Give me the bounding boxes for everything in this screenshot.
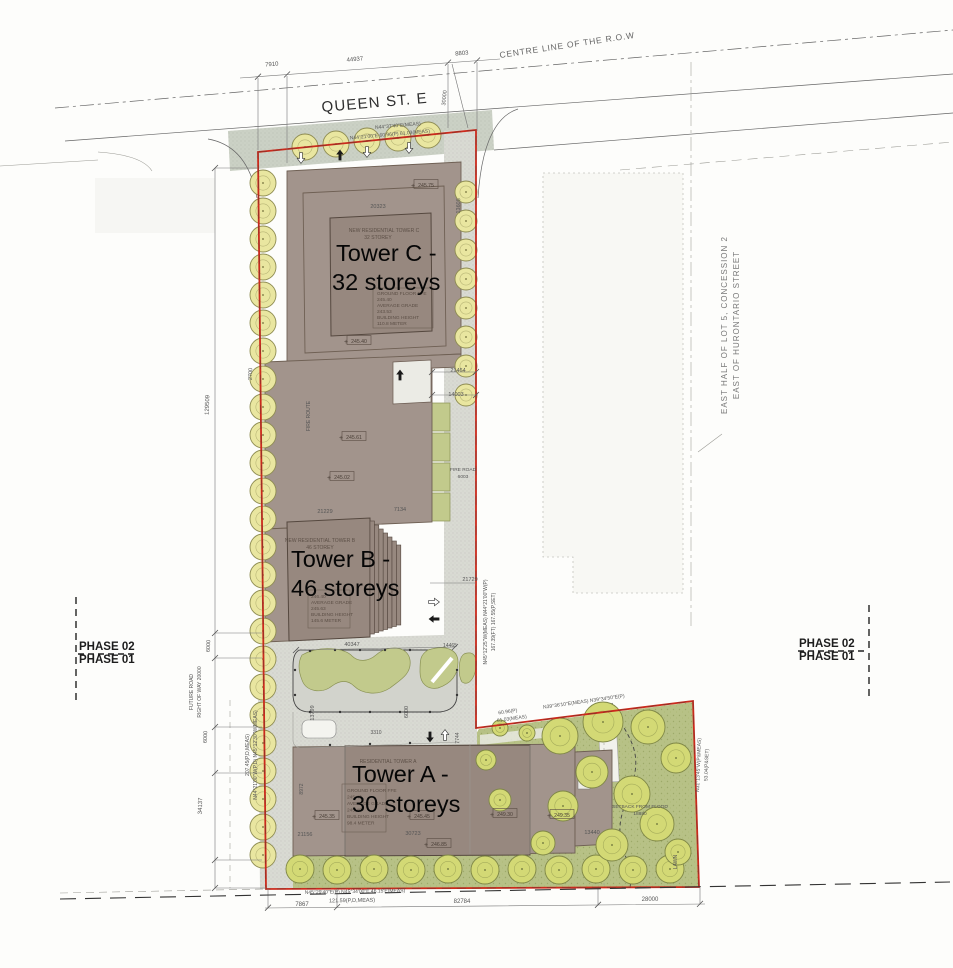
tree-icon bbox=[250, 170, 276, 196]
tree-icon bbox=[631, 710, 665, 744]
tree-icon bbox=[455, 268, 477, 290]
tree-icon bbox=[250, 450, 276, 476]
tower-c-label-line1: Tower C - bbox=[336, 240, 437, 266]
dimension-label: 6000 bbox=[206, 640, 212, 652]
tree-icon bbox=[619, 856, 647, 884]
street-south-curb-right bbox=[494, 113, 953, 150]
svg-text:+: + bbox=[339, 435, 343, 442]
tree-icon bbox=[455, 326, 477, 348]
svg-text:249.35: 249.35 bbox=[554, 813, 570, 819]
tree-icon bbox=[250, 478, 276, 504]
tree-icon bbox=[250, 198, 276, 224]
tree-icon bbox=[455, 239, 477, 261]
street-north-curb bbox=[65, 74, 953, 141]
scan-wash bbox=[95, 178, 215, 233]
dimension-label: 30723 bbox=[405, 831, 420, 837]
arrow-icon bbox=[429, 615, 440, 623]
dimension-label: 20323 bbox=[370, 204, 385, 210]
dimension-label: 207.45(P,D,MEAS) bbox=[245, 734, 251, 776]
tower-c-info-line: 110.8 METER bbox=[377, 321, 407, 327]
tree-icon bbox=[434, 855, 462, 883]
queen-street-label: QUEEN ST. E bbox=[321, 90, 429, 116]
lot-label-leader bbox=[698, 434, 722, 452]
dimension-label: 8972 bbox=[299, 783, 305, 794]
tree-icon bbox=[286, 855, 314, 883]
dimension-label: 21156 bbox=[298, 832, 313, 838]
tree-icon bbox=[576, 756, 608, 788]
dimension-label: 8803 bbox=[455, 50, 469, 57]
tree-icon bbox=[545, 856, 573, 884]
tree-icon bbox=[542, 718, 578, 754]
dimension-label: 167.39(FT) 167.55(P,SET) bbox=[491, 592, 497, 651]
west-corner-curb bbox=[0, 152, 152, 171]
tree-icon bbox=[471, 856, 499, 884]
dimension-label: 82784 bbox=[454, 899, 471, 905]
tree-icon bbox=[455, 297, 477, 319]
phase-01-label-right: PHASE 01 bbox=[799, 651, 855, 663]
site-plan-drawing: PHASE 02 PHASE 01 PHASE 02 PHASE 01 7910… bbox=[0, 0, 953, 968]
phase-02-label-right: PHASE 02 bbox=[799, 638, 855, 650]
dimension-label: 121.59(P,D,MEAS) bbox=[329, 898, 375, 905]
site-plan-page: PHASE 02 PHASE 01 PHASE 02 PHASE 01 7910… bbox=[0, 0, 953, 968]
tower-b-header: NEW RESIDENTIAL TOWER B bbox=[285, 538, 356, 544]
dimension-label: 7134 bbox=[394, 507, 406, 513]
dimension-label: 6000 bbox=[404, 706, 410, 718]
adjacent-parcel bbox=[543, 62, 722, 630]
tree-icon bbox=[508, 855, 536, 883]
tree-icon bbox=[250, 506, 276, 532]
dimension-label: 40347 bbox=[344, 642, 359, 648]
tree-icon bbox=[397, 856, 425, 884]
svg-text:+: + bbox=[411, 183, 415, 190]
tree-icon bbox=[531, 831, 555, 855]
tower-c-label-line2: 32 storeys bbox=[332, 269, 440, 295]
svg-text:245.75: 245.75 bbox=[418, 183, 434, 189]
tree-icon bbox=[489, 789, 511, 811]
dimension-label: N44°21'00"W(P,D) N45°12'30"W(MEAS) bbox=[253, 710, 259, 800]
tower-b-info-line: 245.63 bbox=[311, 606, 326, 612]
tree-icon bbox=[583, 702, 623, 742]
arrow-icon bbox=[429, 598, 440, 606]
dimension-label: 14465 bbox=[443, 643, 457, 649]
future-road-centre bbox=[60, 889, 265, 893]
dimension-label: 44937 bbox=[346, 56, 364, 63]
svg-text:245.40: 245.40 bbox=[351, 339, 367, 345]
dimension-label: N31°13'45"W(P&MEAS) bbox=[695, 738, 703, 792]
dimension-label: 3310 bbox=[370, 730, 381, 736]
dimension-label: 7910 bbox=[265, 61, 279, 68]
tree-icon bbox=[250, 226, 276, 252]
dimension-label: FIRE ROAD bbox=[450, 467, 477, 473]
svg-text:+: + bbox=[312, 814, 316, 821]
tree-icon bbox=[250, 842, 276, 868]
adjacent-parcel-outline bbox=[543, 173, 683, 593]
svg-text:+: + bbox=[327, 475, 331, 482]
tower-c-header: NEW RESIDENTIAL TOWER C bbox=[349, 228, 420, 234]
dimension-label: FUTURE ROAD bbox=[189, 674, 195, 711]
tree-icon bbox=[250, 422, 276, 448]
dimension-label: LAWN bbox=[673, 854, 679, 869]
phase-01-label-left: PHASE 01 bbox=[79, 654, 135, 666]
dimension-label: 21464 bbox=[450, 368, 465, 374]
tree-icon bbox=[250, 814, 276, 840]
dimension-label: 2700 bbox=[248, 368, 254, 380]
dimension-label: 6000 bbox=[203, 731, 209, 743]
dimension-label: 28000 bbox=[642, 897, 659, 903]
dimension-label: 21229 bbox=[317, 509, 332, 515]
dimension-label: 7867 bbox=[295, 902, 309, 908]
tower-c-info-line: 243.53 bbox=[377, 309, 392, 315]
svg-text:+: + bbox=[547, 813, 551, 820]
dimension-label: 6003 bbox=[458, 474, 469, 480]
dimension-label: N45°12'25"W(MEAS) N44°21'00"W(P) bbox=[483, 579, 489, 664]
mid-podium bbox=[265, 354, 461, 529]
dimension-label: 7744 bbox=[455, 732, 461, 743]
dimension-label: 13440 bbox=[584, 830, 599, 836]
dimension-label: RIGHT OF WAY 20000 bbox=[197, 666, 203, 717]
utility-room bbox=[393, 360, 431, 404]
tower-b-label-line2: 46 storeys bbox=[291, 575, 399, 601]
tower-a-label-line1: Tower A - bbox=[352, 761, 449, 787]
svg-text:245.35: 245.35 bbox=[319, 814, 335, 820]
tree-icon bbox=[250, 338, 276, 364]
dimension-label: 30000 bbox=[441, 90, 449, 106]
svg-text:249.30: 249.30 bbox=[497, 812, 513, 818]
svg-text:245.02: 245.02 bbox=[334, 475, 350, 481]
dimension-label: 21729 bbox=[462, 577, 477, 583]
tower-c-info-line: BUILDING HEIGHT bbox=[377, 315, 419, 321]
svg-text:+: + bbox=[344, 339, 348, 346]
tree-icon bbox=[250, 282, 276, 308]
dimension-label: 34137 bbox=[198, 797, 205, 815]
tree-icon bbox=[250, 254, 276, 280]
lot-description-line1: EAST HALF OF LOT 5, CONCESSION 2 bbox=[720, 236, 729, 414]
svg-text:+: + bbox=[490, 812, 494, 819]
tower-c-info-line: AVERAGE GRADE bbox=[377, 303, 418, 309]
dimension-label: 53.04(P&SET) bbox=[703, 748, 710, 781]
svg-text:245.61: 245.61 bbox=[346, 435, 362, 441]
svg-text:+: + bbox=[424, 842, 428, 849]
tower-a-label-line2: 30 storeys bbox=[352, 791, 460, 817]
tree-icon bbox=[476, 750, 496, 770]
dimension-label: FIRE ROUTE bbox=[306, 400, 312, 431]
dimension-label: 18880 bbox=[633, 811, 647, 817]
svg-text:246.85: 246.85 bbox=[431, 842, 447, 848]
dimension-label: 13799 bbox=[310, 705, 316, 720]
entry-walk bbox=[302, 720, 336, 738]
tower-b-info-line: 145.6 METER bbox=[311, 618, 342, 624]
tree-icon bbox=[596, 829, 628, 861]
street-edge-dash bbox=[620, 142, 953, 170]
row-centre-line bbox=[55, 30, 953, 108]
centre-line-label: CENTRE LINE OF THE R.O.W bbox=[499, 30, 636, 60]
tree-icon bbox=[323, 856, 351, 884]
dimension-label: 14003 bbox=[448, 392, 463, 398]
tree-icon bbox=[360, 855, 388, 883]
phase-02-label-left: PHASE 02 bbox=[79, 641, 135, 653]
tree-icon bbox=[661, 743, 691, 773]
dimension-label: N45°29'40"E(P) N45°34'00"E 46.15'E(MEAS) bbox=[305, 888, 406, 896]
tower-a-info-line: 98.4 METER bbox=[347, 821, 375, 827]
dimension-label: SETBACK FROM FLOOD bbox=[612, 804, 668, 810]
tower-b-label-line1: Tower B - bbox=[291, 546, 390, 572]
tree-icon bbox=[250, 310, 276, 336]
lot-description-line2: EAST OF HURONTARIO STREET bbox=[732, 251, 741, 399]
dimension-label: 129509 bbox=[205, 394, 212, 415]
tree-icon bbox=[250, 394, 276, 420]
tower-b-info-line: BUILDING HEIGHT bbox=[311, 612, 353, 618]
tree-icon bbox=[519, 725, 535, 741]
tower-c-info-line: 245.40 bbox=[377, 297, 392, 303]
dimension-label: 13605 bbox=[456, 198, 463, 213]
